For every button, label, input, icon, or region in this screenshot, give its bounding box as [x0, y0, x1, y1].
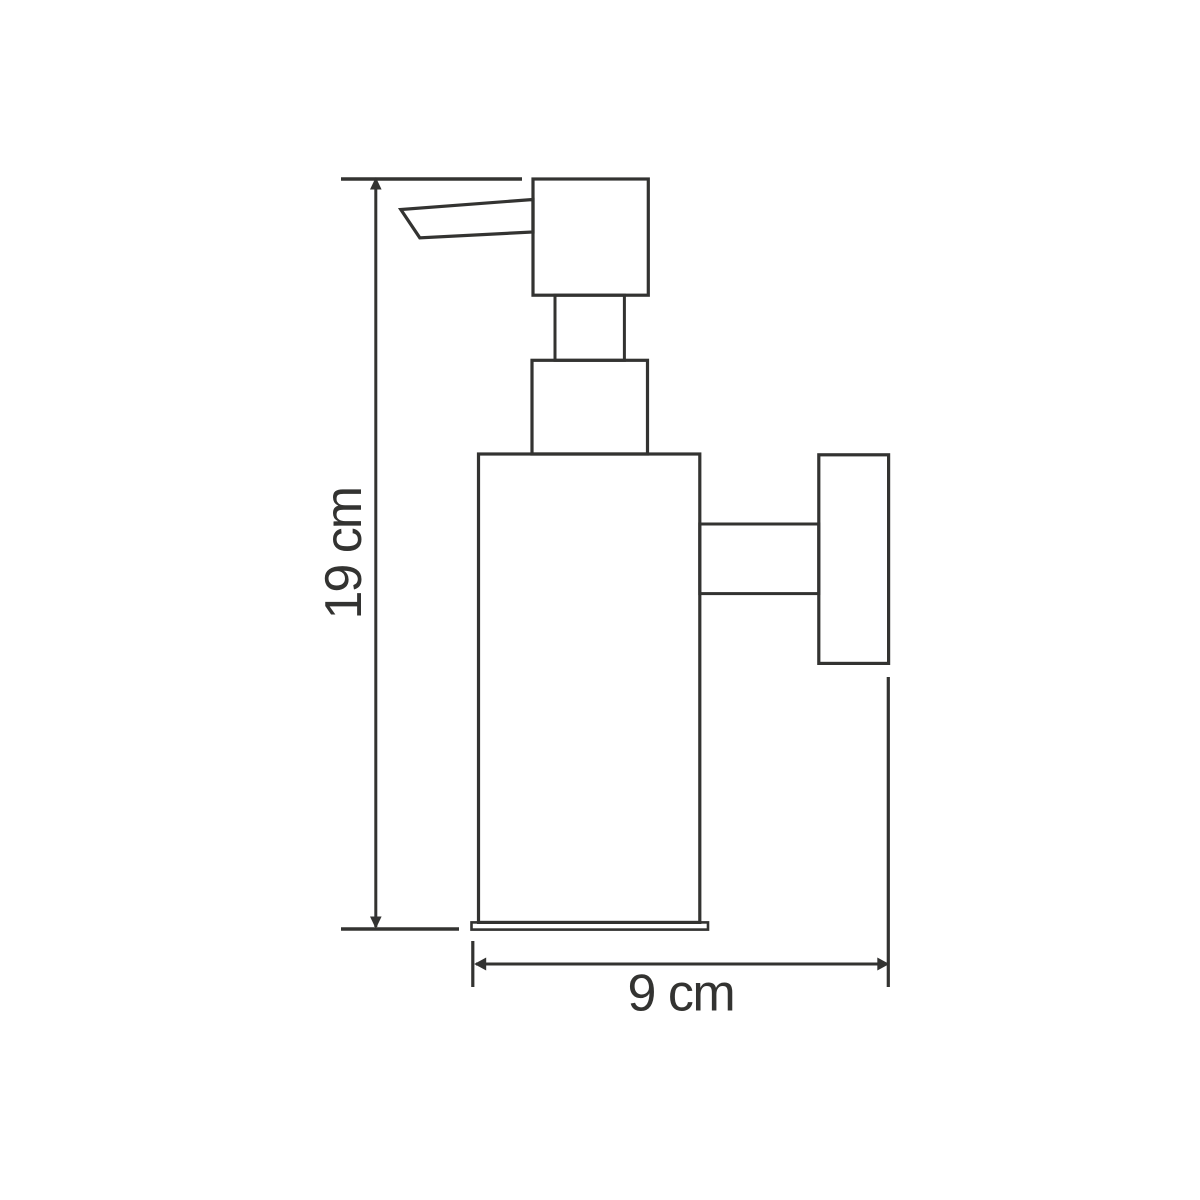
svg-text:9 cm: 9 cm [628, 965, 735, 1023]
svg-text:19 cm: 19 cm [315, 488, 373, 620]
